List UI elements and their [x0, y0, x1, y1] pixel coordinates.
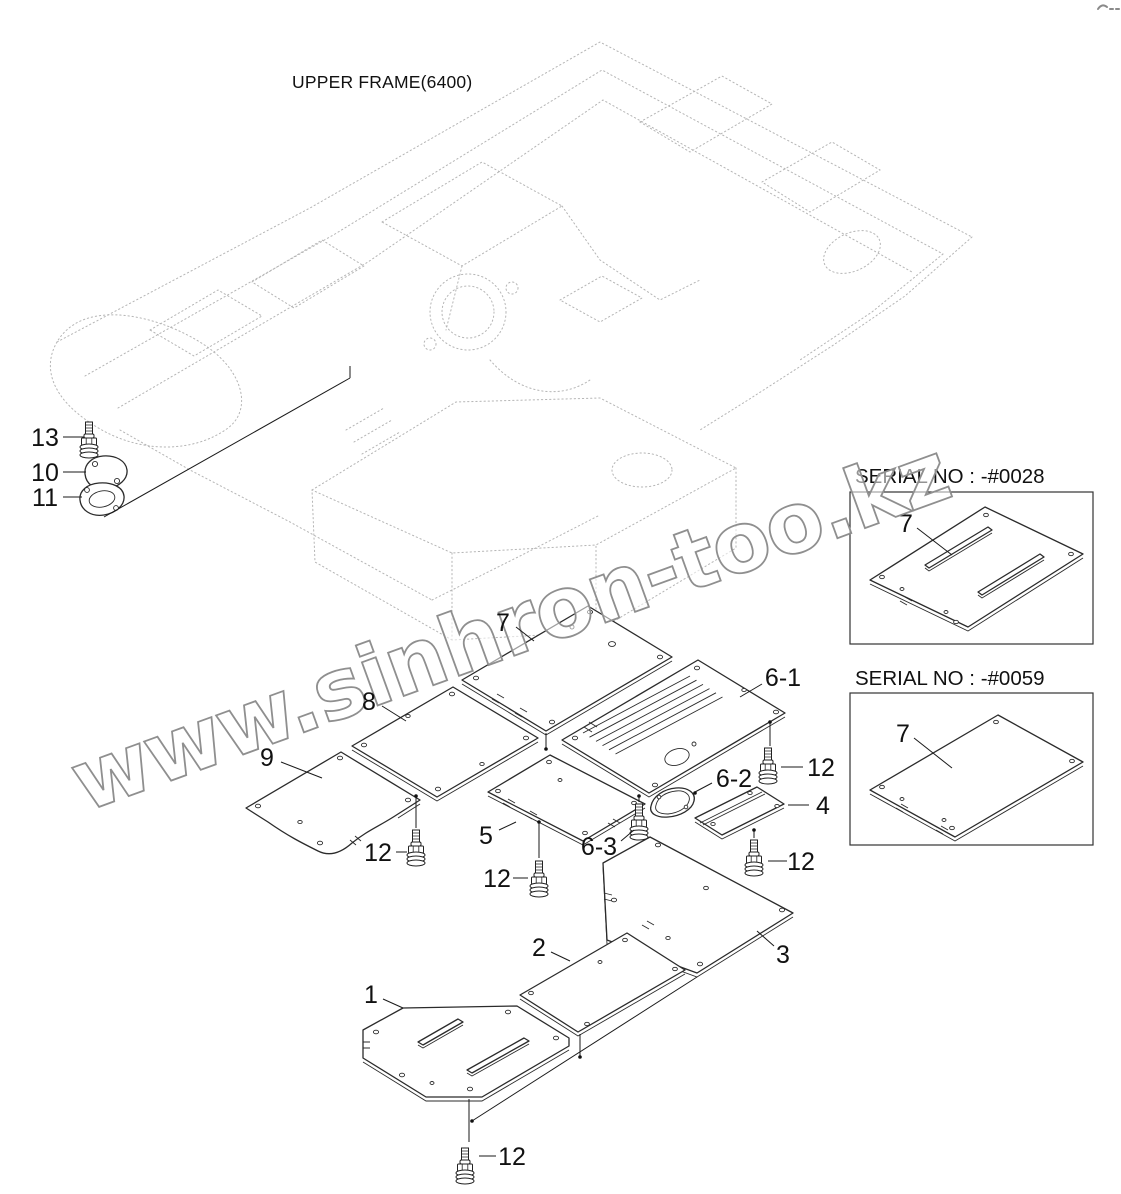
bolt-12-bottom	[456, 1148, 474, 1184]
bolt-12-center	[530, 861, 548, 897]
bolt-12-left	[407, 830, 425, 866]
callout-3: 3	[776, 941, 790, 969]
callout-6-3: 6-3	[581, 833, 617, 861]
callout-12-center: 12	[483, 865, 511, 893]
callout-10: 10	[31, 459, 59, 487]
callout-5: 5	[479, 822, 493, 850]
callout-12-bottom: 12	[498, 1143, 526, 1171]
bolt-12-right-lower	[745, 840, 763, 876]
bolt-12-right-upper	[759, 748, 777, 784]
callout-11: 11	[32, 484, 58, 512]
callout-4: 4	[816, 792, 830, 820]
callout-12-right-upper: 12	[807, 754, 835, 782]
corner-mark	[1098, 5, 1119, 9]
callout-6-2: 6-2	[716, 765, 752, 793]
callout-8: 8	[362, 688, 376, 716]
serial-label-0059: SERIAL NO : -#0059	[855, 667, 1045, 690]
callout-12-left: 12	[364, 839, 392, 867]
diagram-title: UPPER FRAME(6400)	[292, 72, 472, 92]
gasket-11	[80, 483, 124, 515]
plate-4	[695, 787, 784, 839]
callout-7-box2: 7	[896, 720, 910, 748]
parts-diagram: SERIAL NO : -#0028 7 SERIAL NO : -#0059	[0, 0, 1121, 1194]
bolt-13	[80, 422, 98, 458]
callout-6-1: 6-1	[765, 664, 801, 692]
callout-7: 7	[496, 609, 510, 637]
parts-diagram-page: SERIAL NO : -#0028 7 SERIAL NO : -#0059	[0, 0, 1121, 1194]
serial-box-0059: SERIAL NO : -#0059 7	[850, 667, 1093, 845]
plate-1	[363, 1006, 569, 1101]
callout-13: 13	[31, 424, 59, 452]
callout-1: 1	[364, 981, 378, 1009]
callout-2: 2	[532, 934, 546, 962]
callout-9: 9	[260, 744, 274, 772]
callout-12-right-lower: 12	[787, 848, 815, 876]
